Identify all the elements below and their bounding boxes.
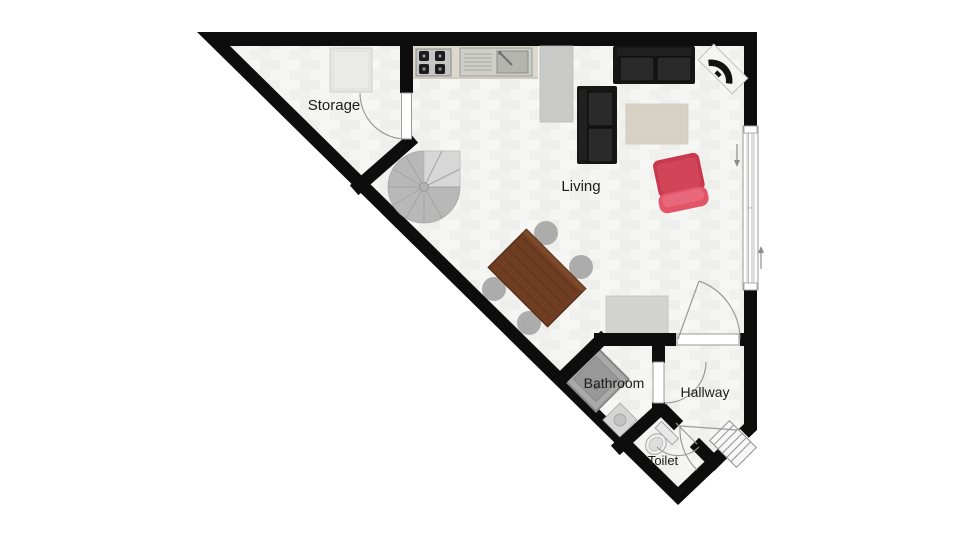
tall-cabinet [540,46,573,122]
sofa-two-seat-top [613,46,695,84]
room-label-hallway: Hallway [680,384,729,400]
floor-plan-page: Storage Living Bathroom Hallway Toilet [0,0,960,540]
room-label-bathroom: Bathroom [584,375,645,391]
rug [626,104,688,144]
room-label-living: Living [561,178,600,195]
slide-arrow-up-icon [758,246,764,269]
room-label-toilet: Toilet [648,453,679,468]
kitchen-sink [460,48,532,76]
storage-shelf [330,48,372,92]
spiral-staircase [388,151,460,223]
room-label-storage: Storage [308,97,361,114]
floor-plan-canvas: Storage Living Bathroom Hallway Toilet [0,0,960,540]
sofa-two-seat-side [577,86,617,164]
stove [416,49,451,76]
sideboard [606,296,668,333]
